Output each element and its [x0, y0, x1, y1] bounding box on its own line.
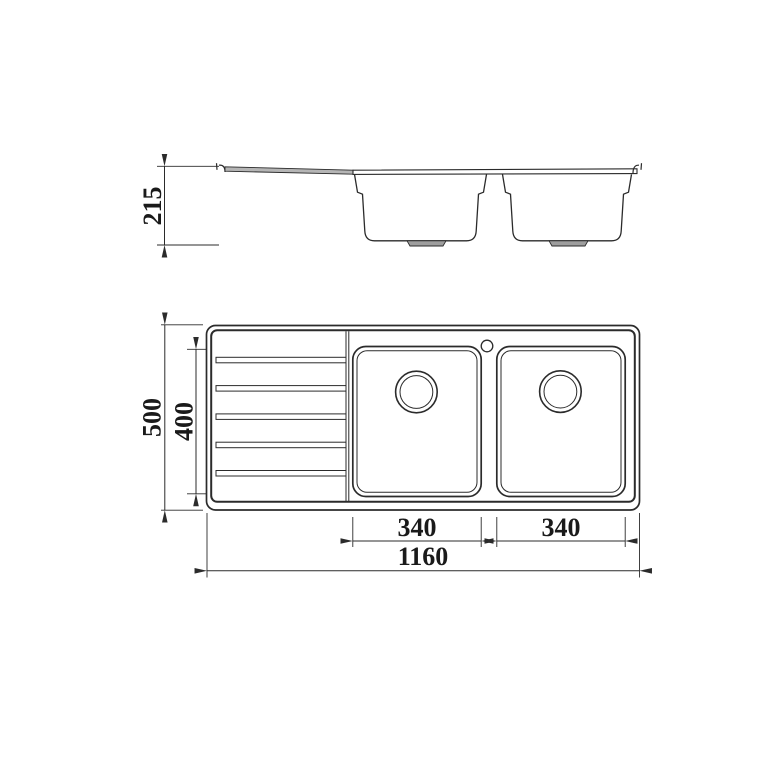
dimension-label-400: 400 — [170, 402, 199, 441]
bowl1-drain — [396, 371, 438, 413]
sink-technical-drawing: 215 500 — [0, 0, 768, 768]
drainboard-profile — [225, 167, 353, 174]
drainboard-groove — [216, 386, 346, 392]
bowl2-drain-inner — [544, 375, 577, 408]
drainboard-groove — [216, 471, 346, 477]
dimension-label-340-left: 340 — [398, 513, 437, 542]
dimension-label-340-right: 340 — [542, 513, 581, 542]
drainboard-groove — [216, 414, 346, 420]
bowl2-outline — [497, 347, 625, 497]
drainboard-groove — [216, 357, 346, 363]
dimension-label-215: 215 — [138, 187, 167, 226]
dimension-bowl2-width: 340 — [497, 513, 625, 547]
bowl2-inner-rim — [501, 351, 621, 493]
bowl2-profile — [503, 174, 632, 240]
bowl2-drain-profile — [549, 241, 588, 246]
bowl1-drain-inner — [400, 376, 433, 409]
sink-outline — [207, 326, 640, 511]
side-view: 215 — [138, 163, 641, 246]
dimension-label-1160: 1160 — [398, 542, 449, 571]
dimension-bowl-depth: 400 — [170, 349, 206, 494]
drainboard-groove — [216, 442, 346, 448]
bowl1-outline — [353, 347, 481, 497]
drawing-page: 215 500 — [0, 0, 768, 768]
rim-profile — [353, 169, 637, 175]
bowl2-drain — [540, 371, 582, 413]
plan-view: 500 400 340 340 1160 — [138, 325, 640, 578]
tap-hole — [481, 340, 493, 352]
left-mounting-clip-profile — [217, 163, 226, 172]
dimension-side-depth: 215 — [138, 166, 219, 245]
bowl1-drain-profile — [407, 241, 446, 246]
bowl1-profile — [355, 174, 487, 240]
dimension-label-500: 500 — [138, 398, 167, 437]
